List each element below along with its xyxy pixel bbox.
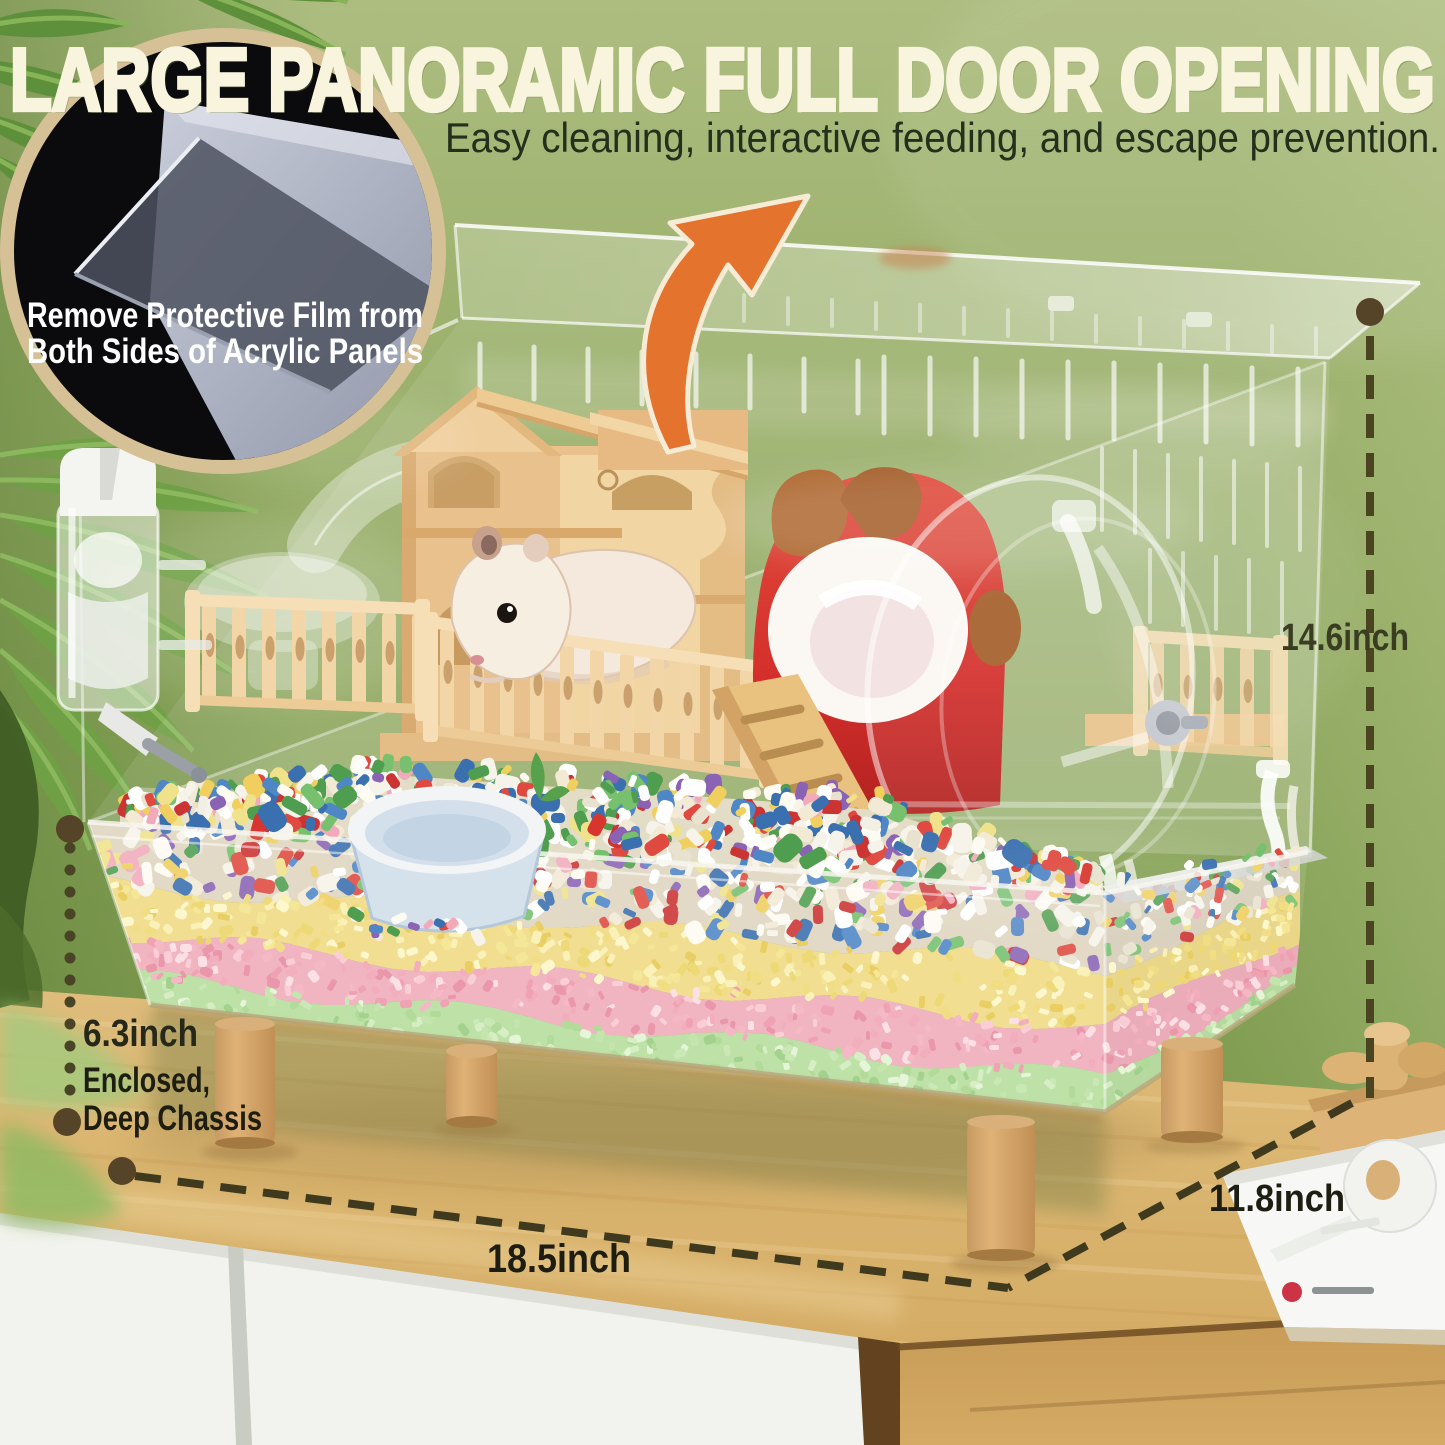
svg-text:Both Sides of Acrylic Panels: Both Sides of Acrylic Panels xyxy=(27,332,423,371)
svg-text:18.5inch: 18.5inch xyxy=(487,1237,631,1281)
svg-text:11.8inch: 11.8inch xyxy=(1209,1178,1345,1220)
svg-text:Remove Protective Film from: Remove Protective Film from xyxy=(27,296,423,335)
svg-text:14.6inch: 14.6inch xyxy=(1281,617,1409,659)
svg-text:Deep Chassis: Deep Chassis xyxy=(83,1099,262,1138)
svg-text:Easy cleaning, interactive fee: Easy cleaning, interactive feeding, and … xyxy=(445,114,1440,161)
svg-text:Enclosed,: Enclosed, xyxy=(83,1061,210,1100)
svg-text:6.3inch: 6.3inch xyxy=(83,1013,198,1055)
